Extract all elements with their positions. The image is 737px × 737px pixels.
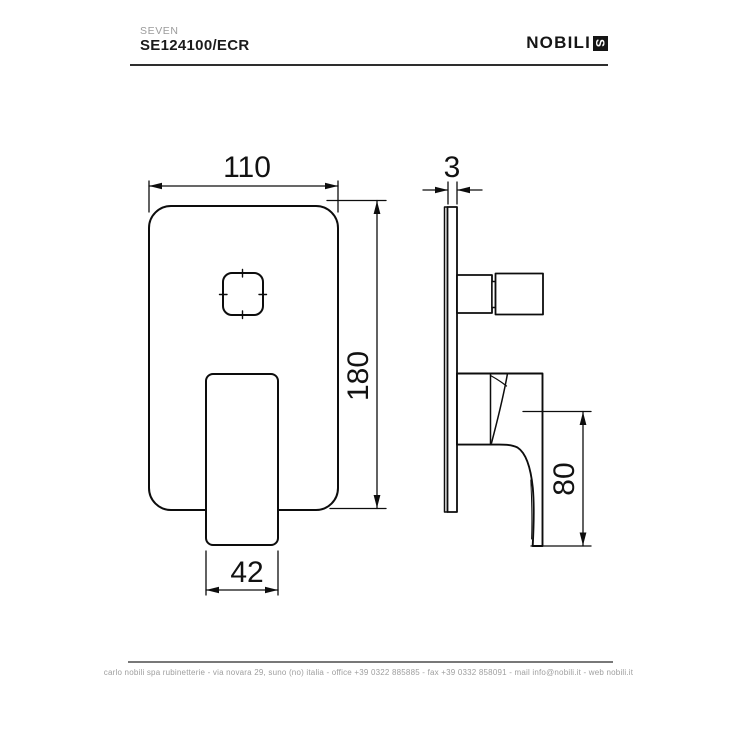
side-plate [448, 207, 458, 512]
front-diverter-button [223, 273, 263, 315]
dim-3-label: 3 [444, 151, 461, 184]
dim-180-label: 180 [342, 351, 375, 401]
footer-divider [128, 661, 613, 663]
technical-drawing: 110 180 42 [0, 0, 737, 737]
side-diverter-knob [496, 274, 544, 315]
dim-42-label: 42 [230, 556, 263, 589]
dim-3 [423, 182, 482, 204]
front-handle [206, 374, 278, 545]
front-view: 110 180 42 [149, 151, 386, 595]
side-handle [457, 374, 543, 547]
dim-80-label: 80 [548, 462, 581, 495]
side-diverter-stem [457, 275, 492, 313]
dim-110-label: 110 [223, 151, 271, 184]
footer-contact-line: carlo nobili spa rubinetterie - via nova… [0, 668, 737, 677]
side-view: 3 80 [423, 151, 591, 546]
